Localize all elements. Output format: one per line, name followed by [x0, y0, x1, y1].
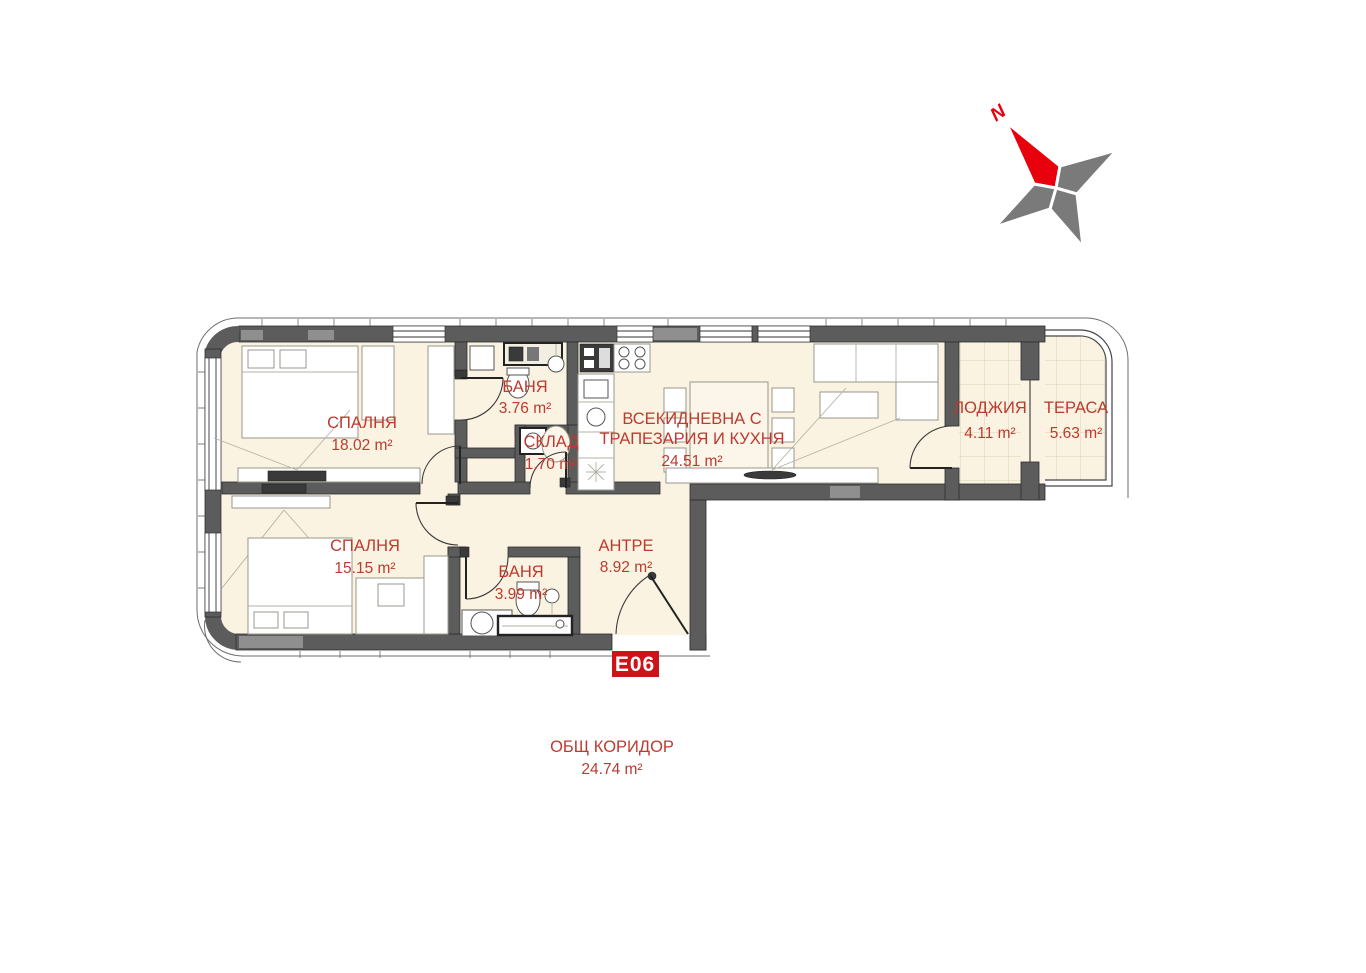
unit-badge-label: E06 — [615, 653, 655, 676]
label-bath1-area: 3.76 m² — [499, 400, 552, 417]
label-entry-area: 8.92 m² — [600, 559, 653, 576]
label-bedroom2-name: СПАЛНЯ — [330, 537, 400, 555]
compass-north-blade — [1006, 122, 1060, 188]
label-bath2-name: БАНЯ — [498, 563, 543, 581]
label-corridor-name: ОБЩ КОРИДОР — [550, 738, 674, 756]
label-bedroom2-area: 15.15 m² — [334, 560, 395, 577]
compass-west-blade — [995, 184, 1056, 227]
label-terrace-name: ТЕРАСА — [1044, 399, 1108, 417]
label-terrace-area: 5.63 m² — [1050, 425, 1103, 442]
unit-badge: E06 — [612, 651, 659, 677]
label-entry-name: АНТРЕ — [598, 537, 653, 555]
label-storage-area: 1.70 m² — [525, 456, 578, 473]
compass-icon: N — [987, 100, 1117, 247]
floor-plan-drawing: СПАЛНЯ 18.02 m² БАНЯ 3.76 m² СКЛАД 1.70 … — [0, 0, 1366, 973]
label-loggia-name: ЛОДЖИЯ — [953, 399, 1027, 417]
label-storage-name: СКЛАД — [523, 433, 578, 451]
label-living-area: 24.51 m² — [661, 453, 722, 470]
label-bedroom1-name: СПАЛНЯ — [327, 414, 397, 432]
compass-east-blade — [1056, 150, 1117, 194]
label-corridor-area: 24.74 m² — [581, 761, 642, 778]
label-bath1-name: БАНЯ — [502, 378, 547, 396]
label-living-name-2: ТРАПЕЗАРИЯ И КУХНЯ — [599, 430, 784, 448]
label-bedroom1-area: 18.02 m² — [331, 437, 392, 454]
label-living-name-1: ВСЕКИДНЕВНА С — [622, 410, 761, 428]
label-bath2-area: 3.99 m² — [495, 586, 548, 603]
floor-plan-page: СПАЛНЯ 18.02 m² БАНЯ 3.76 m² СКЛАД 1.70 … — [0, 0, 1366, 973]
label-loggia-area: 4.11 m² — [964, 425, 1015, 442]
